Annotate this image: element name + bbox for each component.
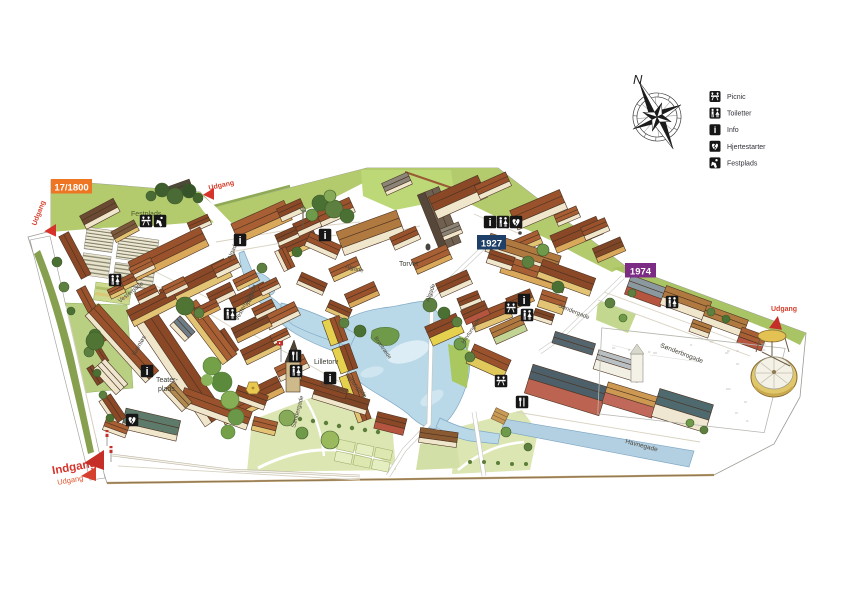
svg-text:i: i xyxy=(239,235,242,247)
svg-text:17/1800: 17/1800 xyxy=(54,183,88,194)
svg-text:1927: 1927 xyxy=(481,239,502,250)
svg-text:Lilletorv: Lilletorv xyxy=(314,359,339,366)
svg-text:i: i xyxy=(489,217,492,229)
svg-text:Info: Info xyxy=(727,127,739,134)
svg-text:Teater-: Teater- xyxy=(156,377,178,384)
svg-text:Festplads: Festplads xyxy=(727,160,758,167)
svg-text:Picnic: Picnic xyxy=(727,94,746,101)
svg-text:Torvet: Torvet xyxy=(399,261,418,268)
svg-text:i: i xyxy=(146,366,149,378)
svg-text:Toiletter: Toiletter xyxy=(727,111,752,118)
svg-text:i: i xyxy=(329,373,332,385)
svg-text:i: i xyxy=(523,295,526,307)
svg-text:i: i xyxy=(714,125,717,135)
svg-text:1974: 1974 xyxy=(630,267,652,278)
svg-text:i: i xyxy=(324,230,327,242)
svg-text:Hjertestarter: Hjertestarter xyxy=(727,144,766,151)
svg-text:N: N xyxy=(633,72,643,87)
svg-text:Udgang: Udgang xyxy=(771,306,797,313)
svg-text:plads: plads xyxy=(158,386,175,393)
